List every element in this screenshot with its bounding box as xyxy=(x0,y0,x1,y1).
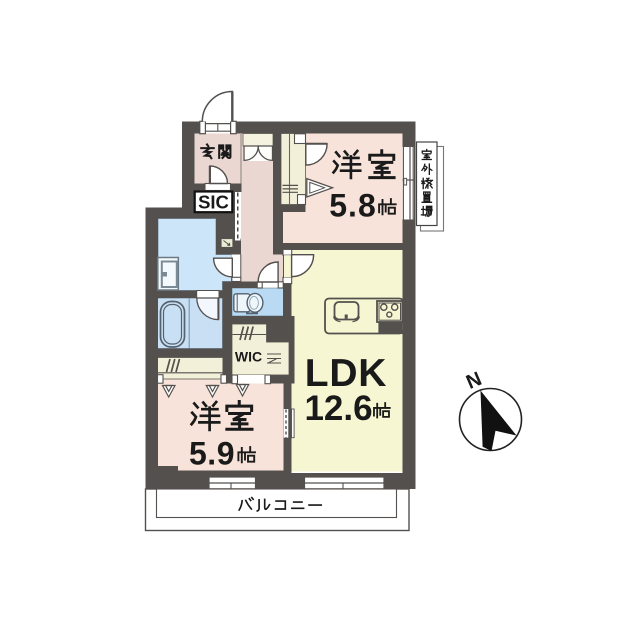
svg-text:12.6: 12.6 xyxy=(304,389,372,428)
svg-text:WIC: WIC xyxy=(235,349,262,365)
svg-text:5.9: 5.9 xyxy=(189,436,235,472)
svg-text:SIC: SIC xyxy=(198,191,229,212)
svg-text:5.8: 5.8 xyxy=(329,188,376,224)
